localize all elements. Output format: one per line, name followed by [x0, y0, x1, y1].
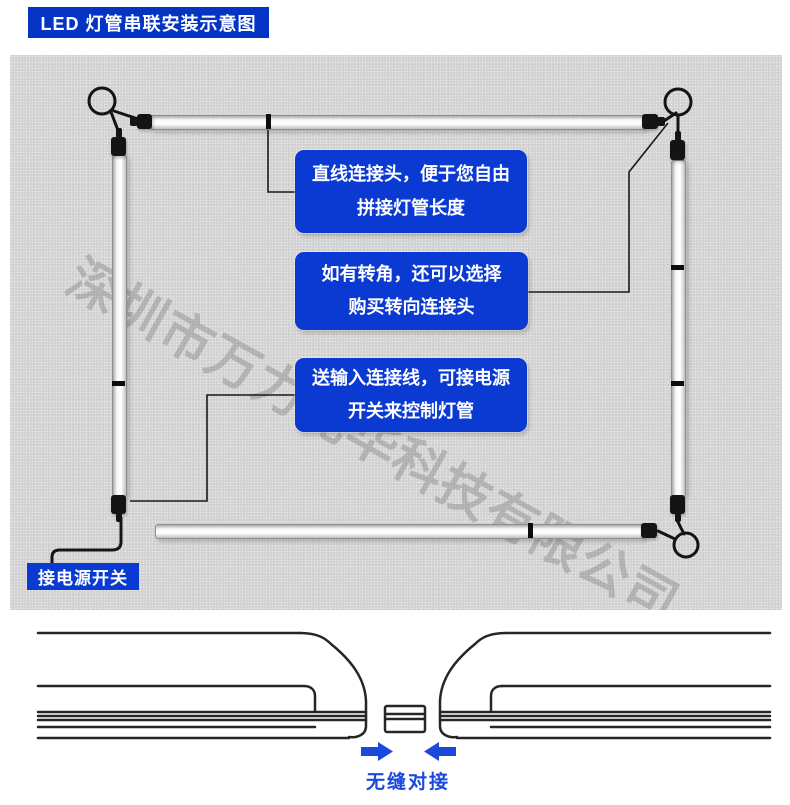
tube-end-cap: [641, 523, 657, 538]
power-switch-label: 接电源开关: [27, 563, 139, 590]
page: { "header": { "title": "LED 灯管串联安装示意图" }…: [0, 0, 790, 805]
callout-text-line: 购买转向连接头: [295, 291, 528, 324]
callout-text-line: 如有转角，还可以选择: [295, 258, 528, 291]
top-tube: [150, 115, 646, 130]
arrow-left-icon: [424, 742, 456, 761]
tube-connector-stub: [130, 117, 138, 126]
leader-line-corner-connector: [526, 123, 668, 292]
connector-piece-drawing: [385, 706, 425, 732]
callout-text-line: 拼接灯管长度: [295, 192, 527, 225]
tube-end-cap: [642, 114, 658, 129]
tube-end-cap: [670, 495, 685, 514]
arrow-right-icon: [361, 742, 393, 761]
hanging-loop-icon: [664, 89, 691, 131]
callout-straight-connector: 直线连接头，便于您自由 拼接灯管长度: [295, 150, 527, 233]
tube-joint: [671, 381, 684, 386]
tube-joint: [528, 523, 533, 538]
callout-text-line: 直线连接头，便于您自由: [295, 158, 527, 191]
hanging-loop-icon: [89, 88, 138, 133]
callout-input-cable: 送输入连接线，可接电源 开关来控制灯管: [295, 358, 527, 432]
leader-line-input-cable: [130, 395, 296, 501]
tube-connector-stub: [675, 513, 681, 522]
power-cable: [52, 518, 121, 564]
right-tube: [671, 160, 686, 497]
diagram-panel: 深圳市万力光华科技有限公司: [10, 55, 782, 610]
tube-joint: [266, 114, 271, 129]
callout-text-line: 开关来控制灯管: [295, 395, 527, 428]
leader-line-straight-connector: [268, 129, 296, 192]
tube-end-cap: [111, 495, 126, 514]
left-tube: [112, 155, 127, 497]
tube-joint: [671, 265, 684, 270]
tube-connector-stub: [116, 128, 122, 138]
tube-end-cap: [111, 137, 126, 156]
tube-joint: [112, 381, 125, 386]
tube-end-drawing-left: [38, 633, 366, 738]
tube-end-cap: [670, 140, 685, 160]
tube-end-drawing-right: [440, 633, 770, 738]
seamless-joint-caption: 无缝对接: [348, 767, 468, 794]
callout-corner-connector: 如有转角，还可以选择 购买转向连接头: [295, 252, 528, 330]
tube-connector-stub: [657, 117, 665, 126]
callout-text-line: 送输入连接线，可接电源: [295, 362, 527, 395]
page-title: LED 灯管串联安装示意图: [28, 7, 269, 38]
tube-connector-stub: [116, 513, 122, 522]
hanging-loop-icon: [658, 522, 698, 557]
bottom-tube: [155, 524, 645, 539]
tube-connector-stub: [675, 131, 681, 141]
tube-end-cap: [137, 114, 152, 129]
